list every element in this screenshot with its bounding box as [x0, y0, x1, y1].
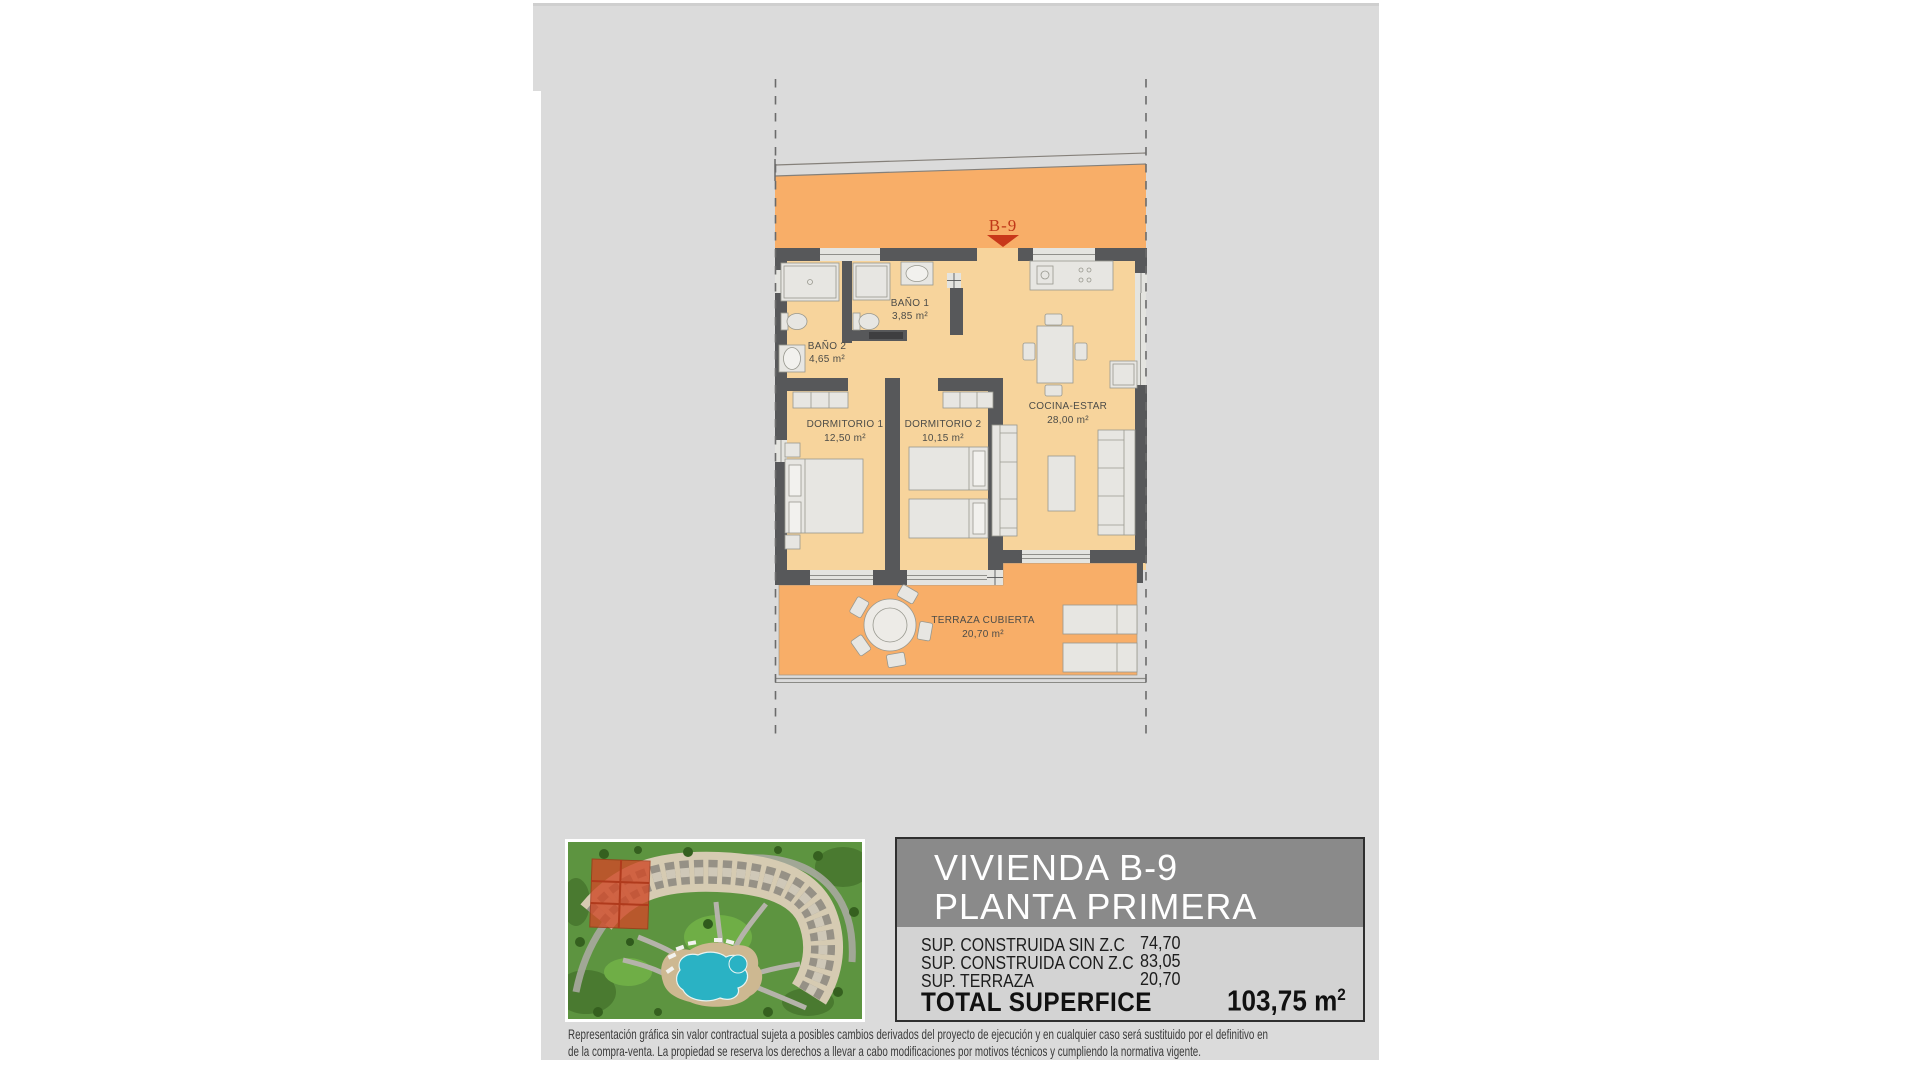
total-label: TOTAL SUPERFICE — [921, 987, 1152, 1018]
title-header: VIVIENDA B-9 PLANTA PRIMERA — [897, 839, 1363, 927]
title-line2: PLANTA PRIMERA — [934, 887, 1363, 926]
site-plan-render — [568, 842, 862, 1019]
label-terraza: TERRAZA CUBIERTA — [931, 615, 1034, 626]
area-bano2: 4,65 m² — [809, 354, 845, 365]
total-value-number: 103,75 m — [1227, 986, 1337, 1018]
site-plan-image — [565, 839, 865, 1022]
label-bano2: BAÑO 2 — [808, 339, 847, 352]
title-line1: VIVIENDA B-9 — [934, 848, 1363, 887]
title-block: VIVIENDA B-9 PLANTA PRIMERA SUP. CONSTRU… — [895, 837, 1365, 1022]
label-dorm2: DORMITORIO 2 — [905, 419, 982, 430]
area-dorm2: 10,15 m² — [922, 433, 964, 444]
total-value-sup: 2 — [1337, 985, 1346, 1004]
brochure-page: BAÑO 1 3,85 m² BAÑO 2 4,65 m² DORMITORIO… — [0, 0, 1920, 1080]
label-cocina: COCINA-ESTAR — [1029, 401, 1107, 412]
area-terraza: 20,70 m² — [962, 629, 1004, 640]
highlighted-building — [590, 859, 650, 929]
corridor-band — [775, 153, 1146, 248]
area-dorm1: 12,50 m² — [824, 433, 866, 444]
area-bano1: 3,85 m² — [892, 311, 928, 322]
label-dorm1: DORMITORIO 1 — [807, 419, 884, 430]
floor-plan: BAÑO 1 3,85 m² BAÑO 2 4,65 m² DORMITORIO… — [765, 75, 1160, 745]
unit-label: B-9 — [989, 216, 1018, 235]
label-bano1: BAÑO 1 — [891, 296, 930, 309]
disclaimer-line1: Representación gráfica sin valor contrac… — [568, 1026, 1268, 1043]
disclaimer: Representación gráfica sin valor contrac… — [568, 1026, 1568, 1060]
area-cocina: 28,00 m² — [1047, 415, 1089, 426]
disclaimer-line2: de la compra-venta. La propiedad se rese… — [568, 1043, 1268, 1060]
total-value: 103,75 m2 — [1227, 985, 1346, 1019]
